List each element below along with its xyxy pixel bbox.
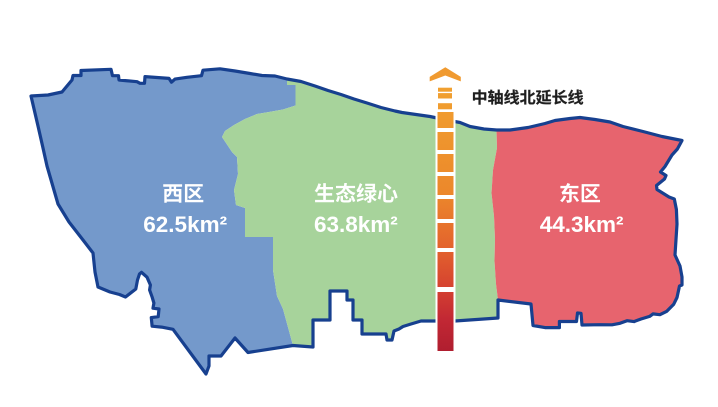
svg-text:44.3km²: 44.3km² (540, 212, 624, 237)
svg-text:62.5km²: 62.5km² (143, 212, 227, 237)
svg-text:63.8km²: 63.8km² (314, 212, 398, 237)
